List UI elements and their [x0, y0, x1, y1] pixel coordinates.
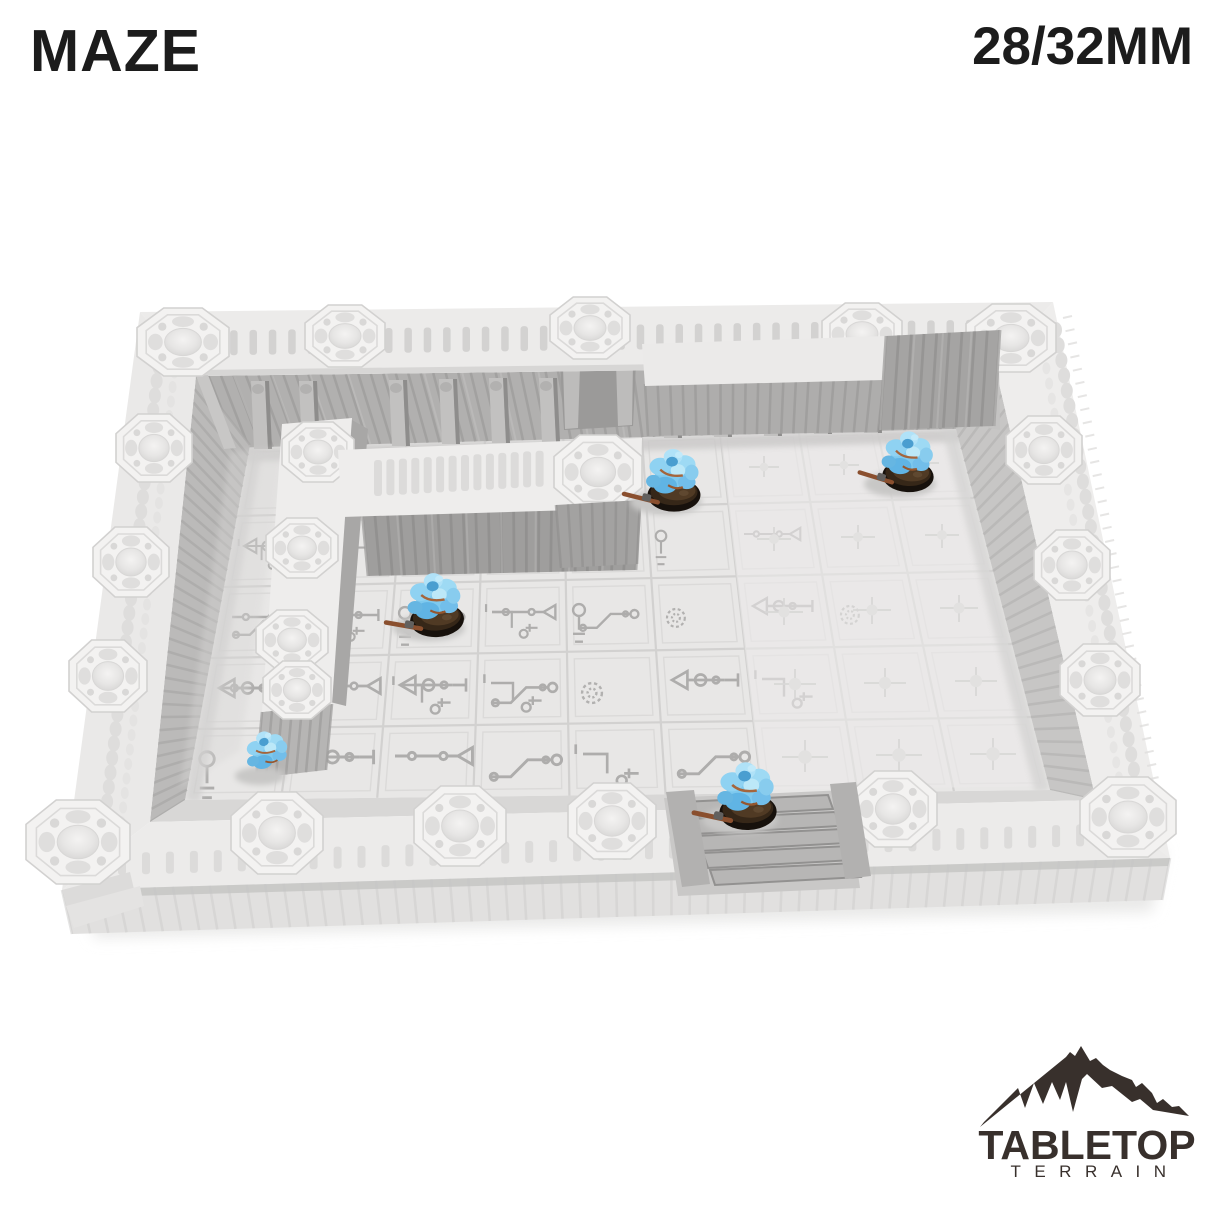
svg-text:28/32MM: 28/32MM [972, 17, 1193, 76]
svg-text:TERRAIN: TERRAIN [1010, 1162, 1179, 1181]
svg-text:MAZE: MAZE [30, 18, 201, 84]
